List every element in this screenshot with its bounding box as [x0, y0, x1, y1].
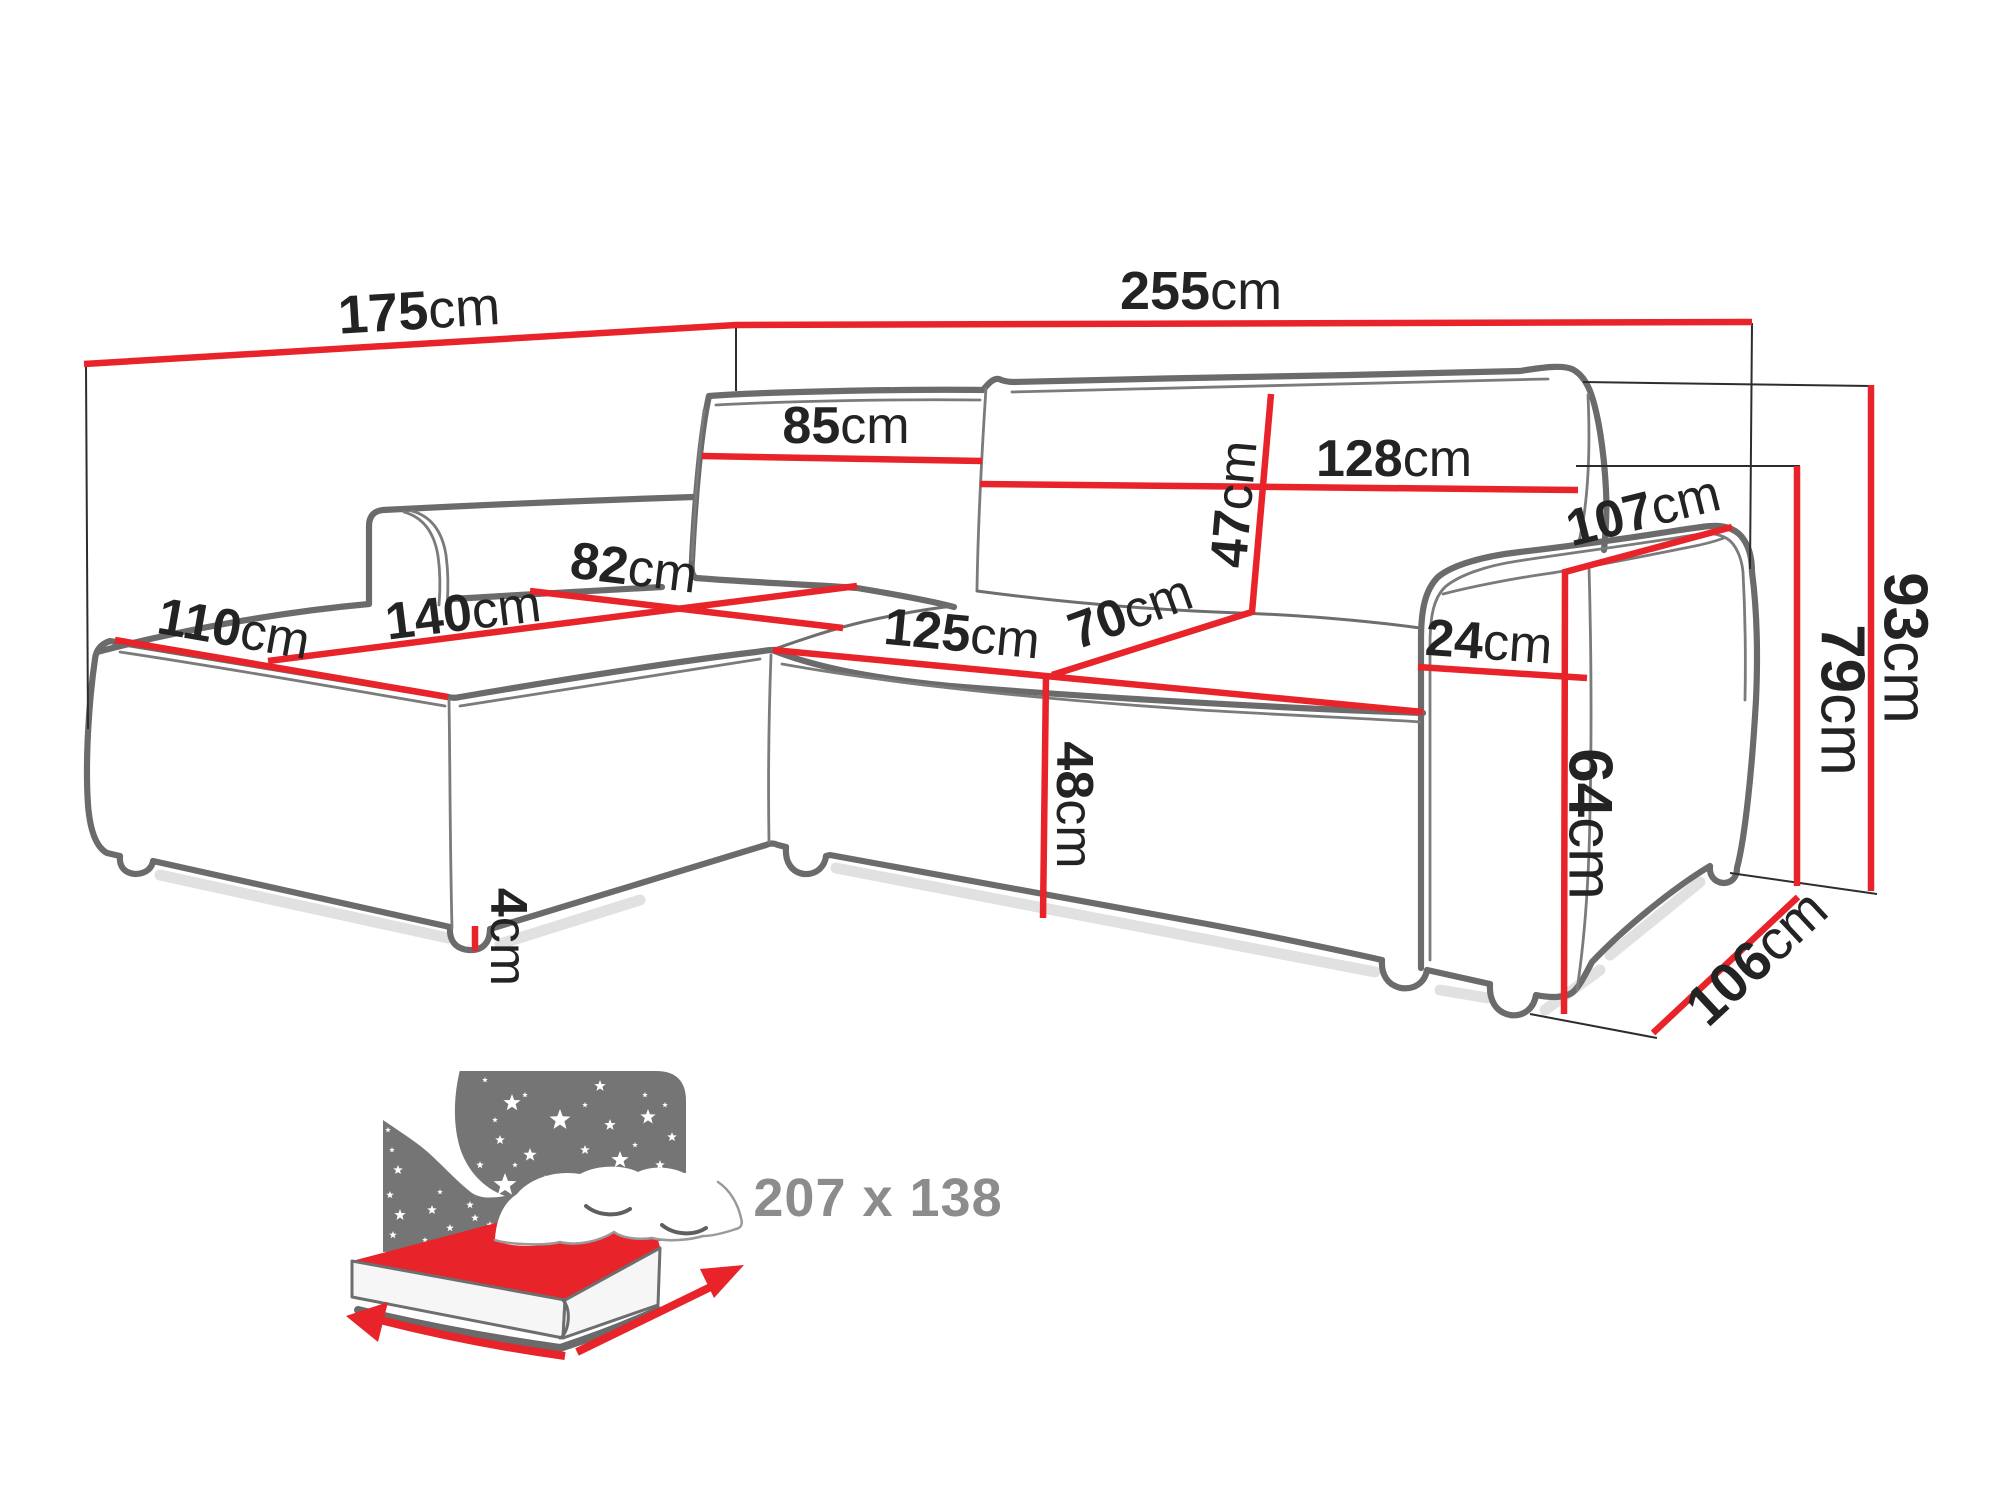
svg-text:175cm: 175cm — [336, 276, 501, 346]
svg-text:47cm: 47cm — [1200, 438, 1269, 570]
svg-text:24cm: 24cm — [1423, 609, 1554, 676]
svg-text:79cm: 79cm — [1807, 624, 1876, 776]
svg-text:207 x 138: 207 x 138 — [753, 1168, 1002, 1228]
svg-text:64cm: 64cm — [1555, 748, 1624, 900]
svg-text:93cm: 93cm — [1870, 572, 1939, 724]
svg-text:4cm: 4cm — [479, 888, 537, 986]
svg-text:128cm: 128cm — [1316, 430, 1472, 488]
svg-text:85cm: 85cm — [782, 397, 909, 455]
svg-text:48cm: 48cm — [1045, 741, 1103, 868]
svg-text:255cm: 255cm — [1120, 261, 1282, 321]
